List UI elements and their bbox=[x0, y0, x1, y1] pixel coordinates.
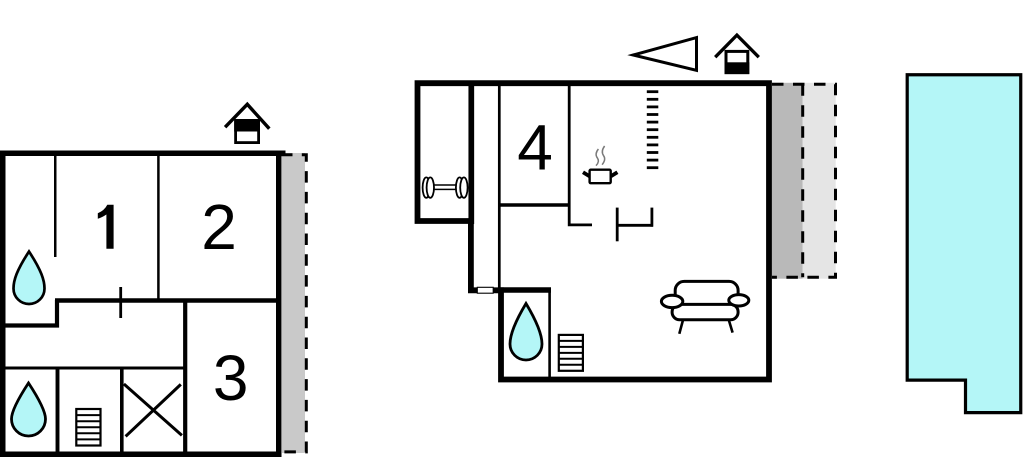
svg-text:4: 4 bbox=[517, 112, 553, 184]
svg-text:3: 3 bbox=[213, 342, 249, 414]
svg-text:2: 2 bbox=[201, 191, 237, 263]
